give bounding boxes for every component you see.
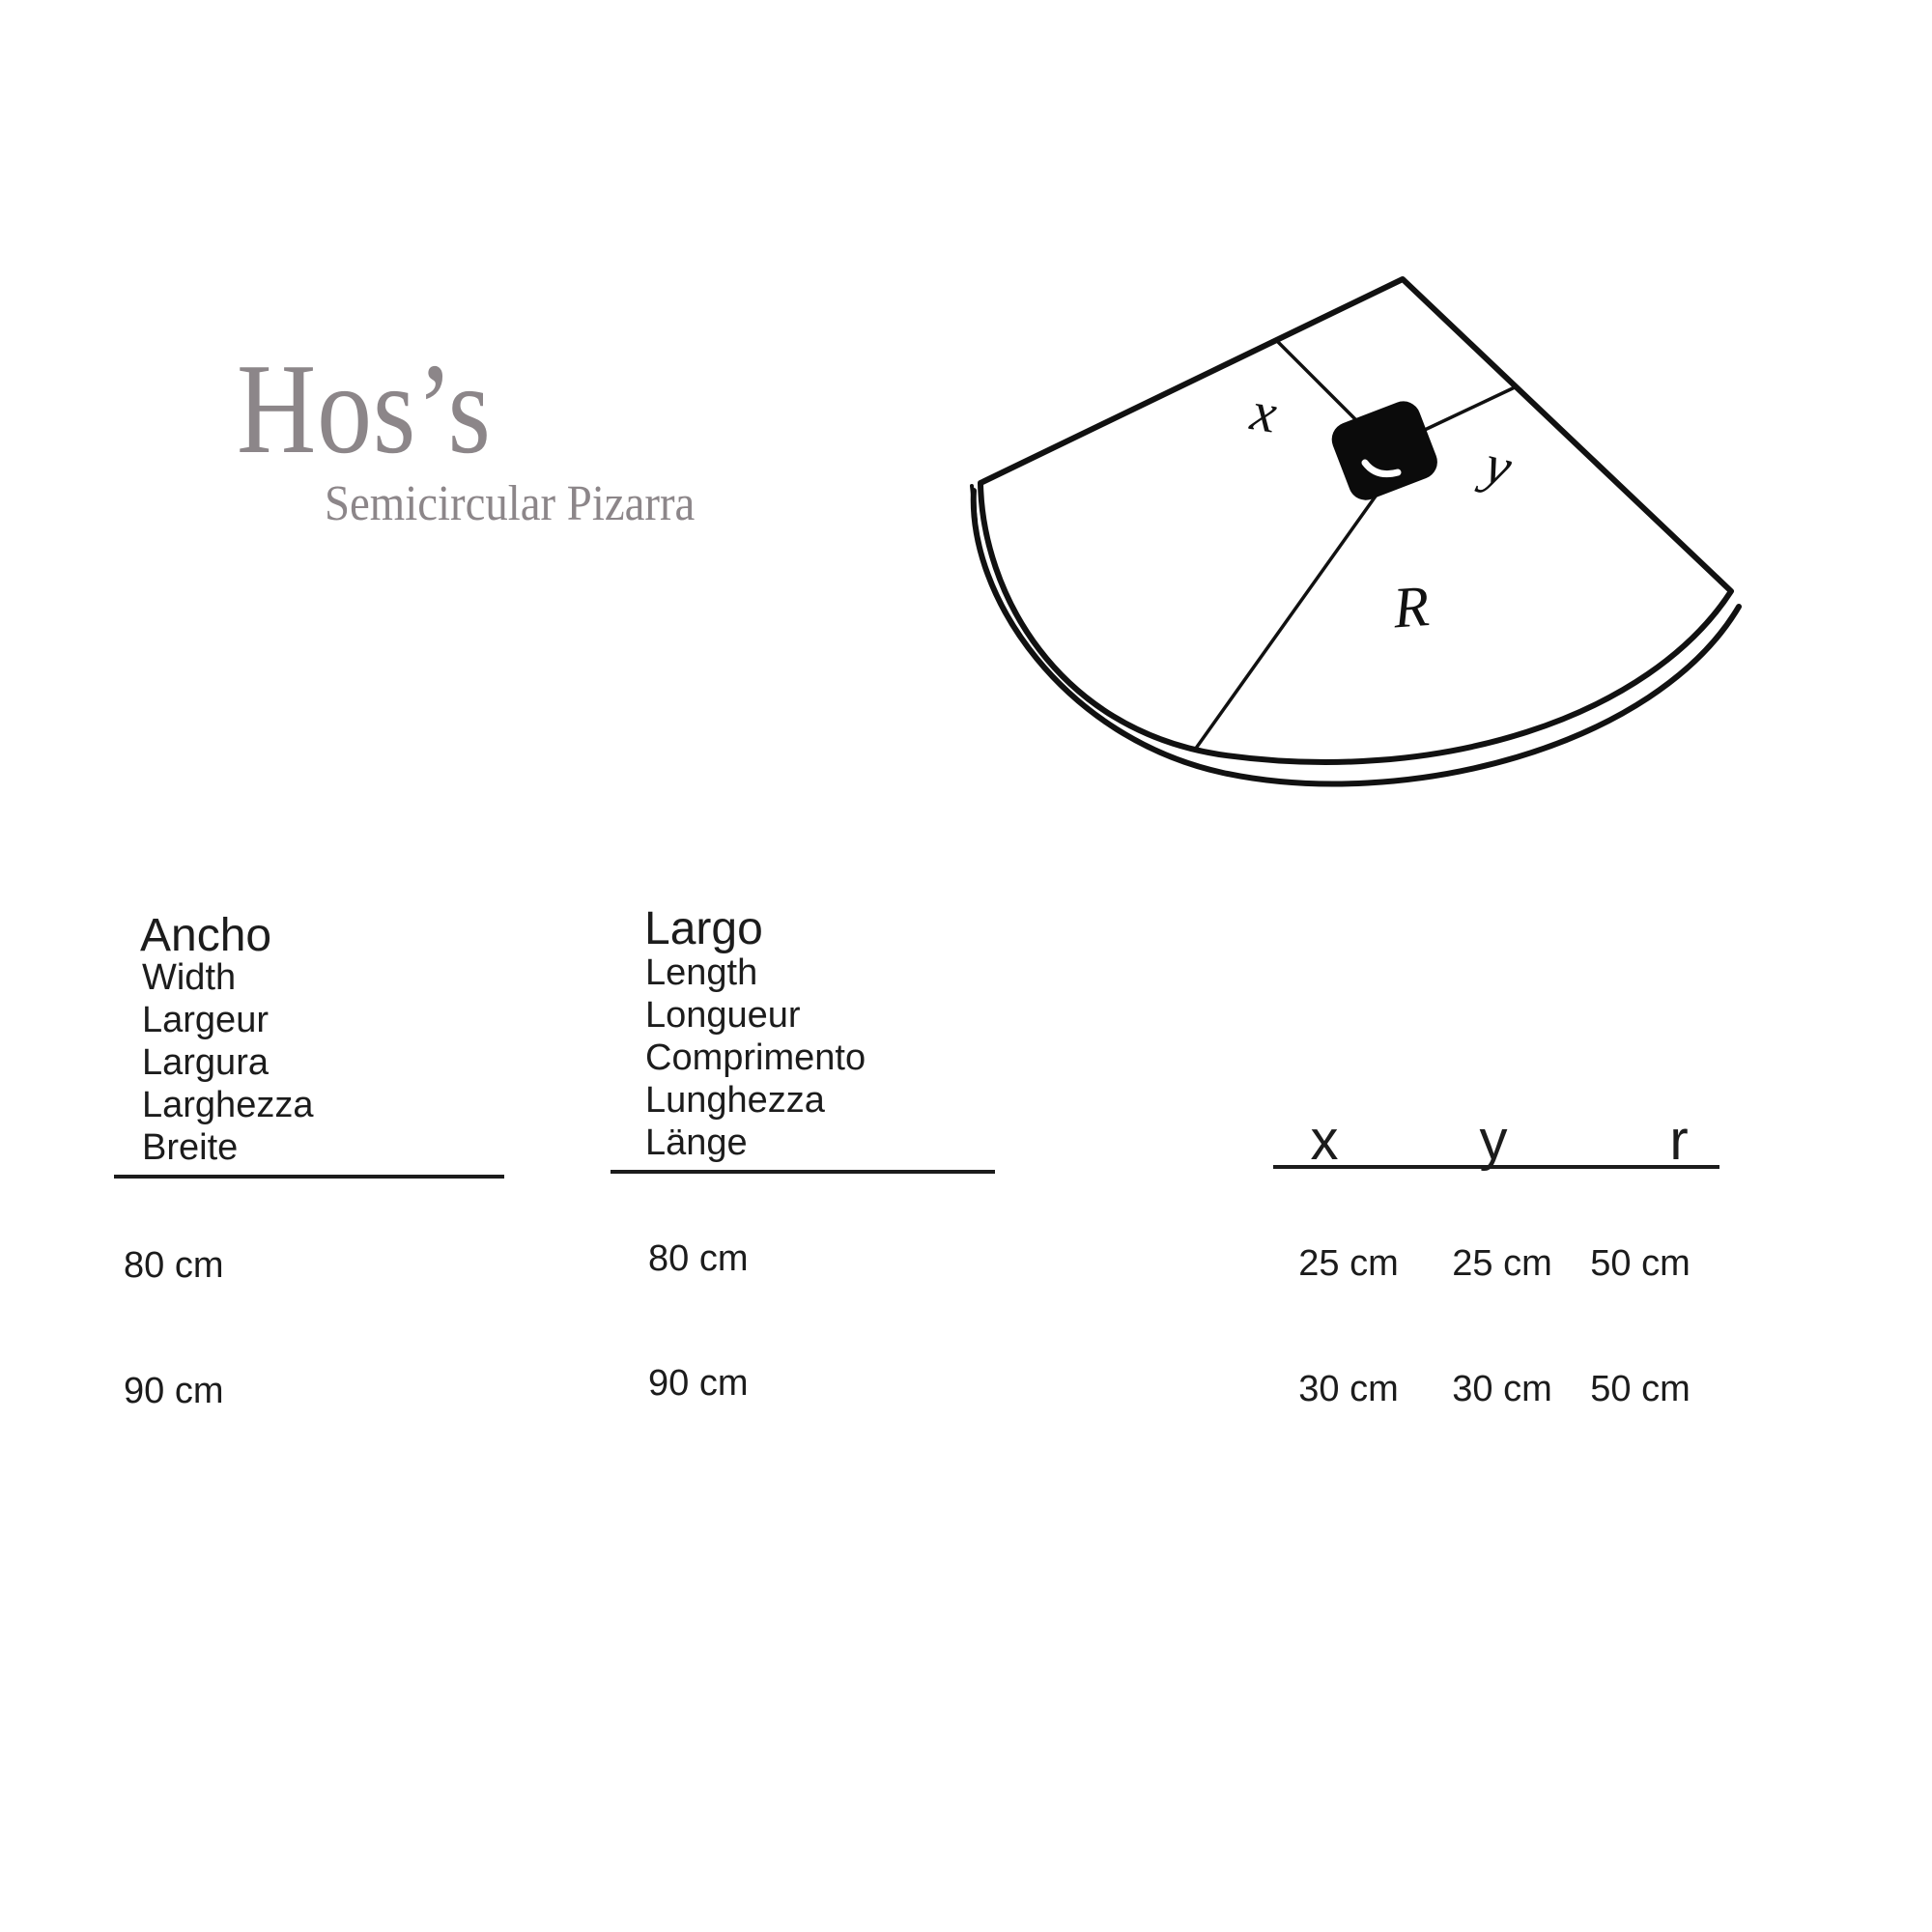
- width-translation: Largeur: [142, 999, 313, 1041]
- length-column-rule: [611, 1170, 995, 1174]
- xyr-rule: [1273, 1165, 1719, 1169]
- xyr-value-x-row1: 25 cm: [1271, 1245, 1426, 1282]
- length-value-row1: 80 cm: [648, 1240, 748, 1277]
- width-translation: Larghezza: [142, 1084, 313, 1126]
- width-column-header: Ancho: [140, 913, 271, 959]
- xyr-header-y: y: [1435, 1113, 1551, 1169]
- length-column-header: Largo: [644, 906, 763, 952]
- length-translation: Länge: [645, 1122, 866, 1164]
- length-translation: Comprimento: [645, 1037, 866, 1079]
- length-translation: Longueur: [645, 994, 866, 1037]
- xyr-value-y-row1: 25 cm: [1425, 1245, 1579, 1282]
- xyr-value-y-row2: 30 cm: [1425, 1371, 1579, 1407]
- spec-sheet: Hos’s Semicircular Pizarra x y R Ancho W…: [0, 0, 1932, 1932]
- board-outline: [980, 279, 1731, 762]
- diagram-label-r: R: [1390, 574, 1431, 639]
- length-translation: Length: [645, 952, 866, 994]
- width-value-row2: 90 cm: [124, 1373, 223, 1409]
- width-translation: Largura: [142, 1041, 313, 1084]
- brand-subtitle: Semicircular Pizarra: [325, 479, 695, 529]
- width-column-translations: Width Largeur Largura Larghezza Breite: [142, 956, 313, 1169]
- xyr-header-x: x: [1266, 1113, 1382, 1169]
- length-value-row2: 90 cm: [648, 1365, 748, 1402]
- length-column-translations: Length Longueur Comprimento Lunghezza Lä…: [645, 952, 866, 1164]
- xyr-header-r: r: [1621, 1113, 1737, 1169]
- brand-title: Hos’s: [237, 344, 492, 473]
- width-value-row1: 80 cm: [124, 1247, 223, 1284]
- width-column-rule: [114, 1175, 504, 1179]
- width-translation: Breite: [142, 1126, 313, 1169]
- pizarra-diagram: x y R: [927, 208, 1777, 826]
- xyr-value-x-row2: 30 cm: [1271, 1371, 1426, 1407]
- width-translation: Width: [142, 956, 313, 999]
- length-translation: Lunghezza: [645, 1079, 866, 1122]
- xyr-value-r-row2: 50 cm: [1563, 1371, 1718, 1407]
- xyr-value-r-row1: 50 cm: [1563, 1245, 1718, 1282]
